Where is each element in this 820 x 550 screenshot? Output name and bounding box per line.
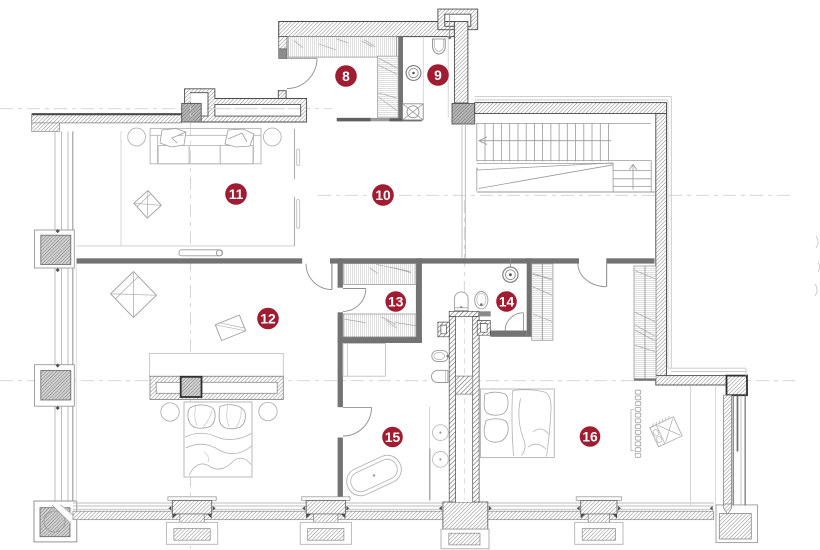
- svg-text:11: 11: [229, 187, 244, 202]
- svg-text:12: 12: [260, 312, 276, 327]
- svg-text:15: 15: [385, 430, 401, 445]
- svg-text:13: 13: [388, 295, 404, 310]
- svg-text:9: 9: [434, 68, 442, 83]
- svg-text:8: 8: [342, 69, 350, 84]
- svg-text:16: 16: [582, 430, 598, 445]
- svg-text:10: 10: [375, 188, 391, 203]
- svg-text:14: 14: [499, 295, 515, 310]
